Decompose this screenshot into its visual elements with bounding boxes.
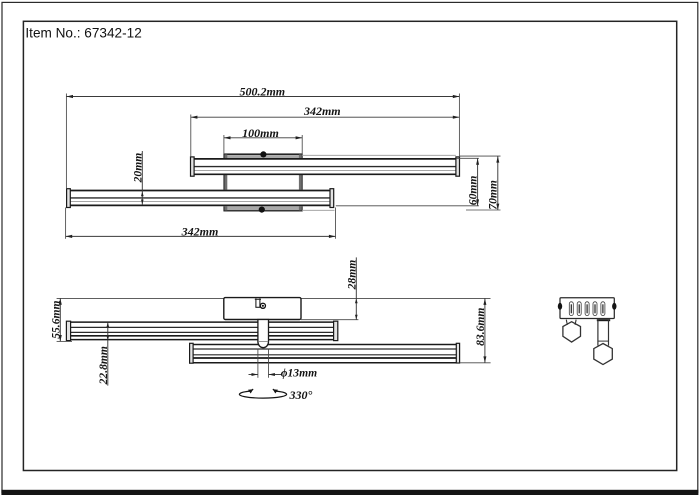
svg-text:ϕ13mm: ϕ13mm: [281, 367, 317, 380]
svg-text:330°: 330°: [289, 388, 313, 402]
svg-text:Item No.: 67342-12: Item No.: 67342-12: [25, 26, 141, 41]
svg-text:60mm: 60mm: [466, 176, 479, 206]
svg-text:20mm: 20mm: [131, 153, 144, 184]
svg-text:100mm: 100mm: [242, 126, 279, 140]
svg-text:55.6mm: 55.6mm: [49, 300, 62, 338]
svg-text:342mm: 342mm: [181, 225, 219, 239]
svg-text:22.8mm: 22.8mm: [97, 346, 110, 385]
svg-text:500.2mm: 500.2mm: [239, 84, 285, 98]
svg-text:70mm: 70mm: [487, 180, 500, 210]
svg-text:83.6mm: 83.6mm: [474, 308, 487, 346]
svg-text:28mm: 28mm: [345, 260, 358, 291]
svg-text:342mm: 342mm: [303, 104, 341, 118]
